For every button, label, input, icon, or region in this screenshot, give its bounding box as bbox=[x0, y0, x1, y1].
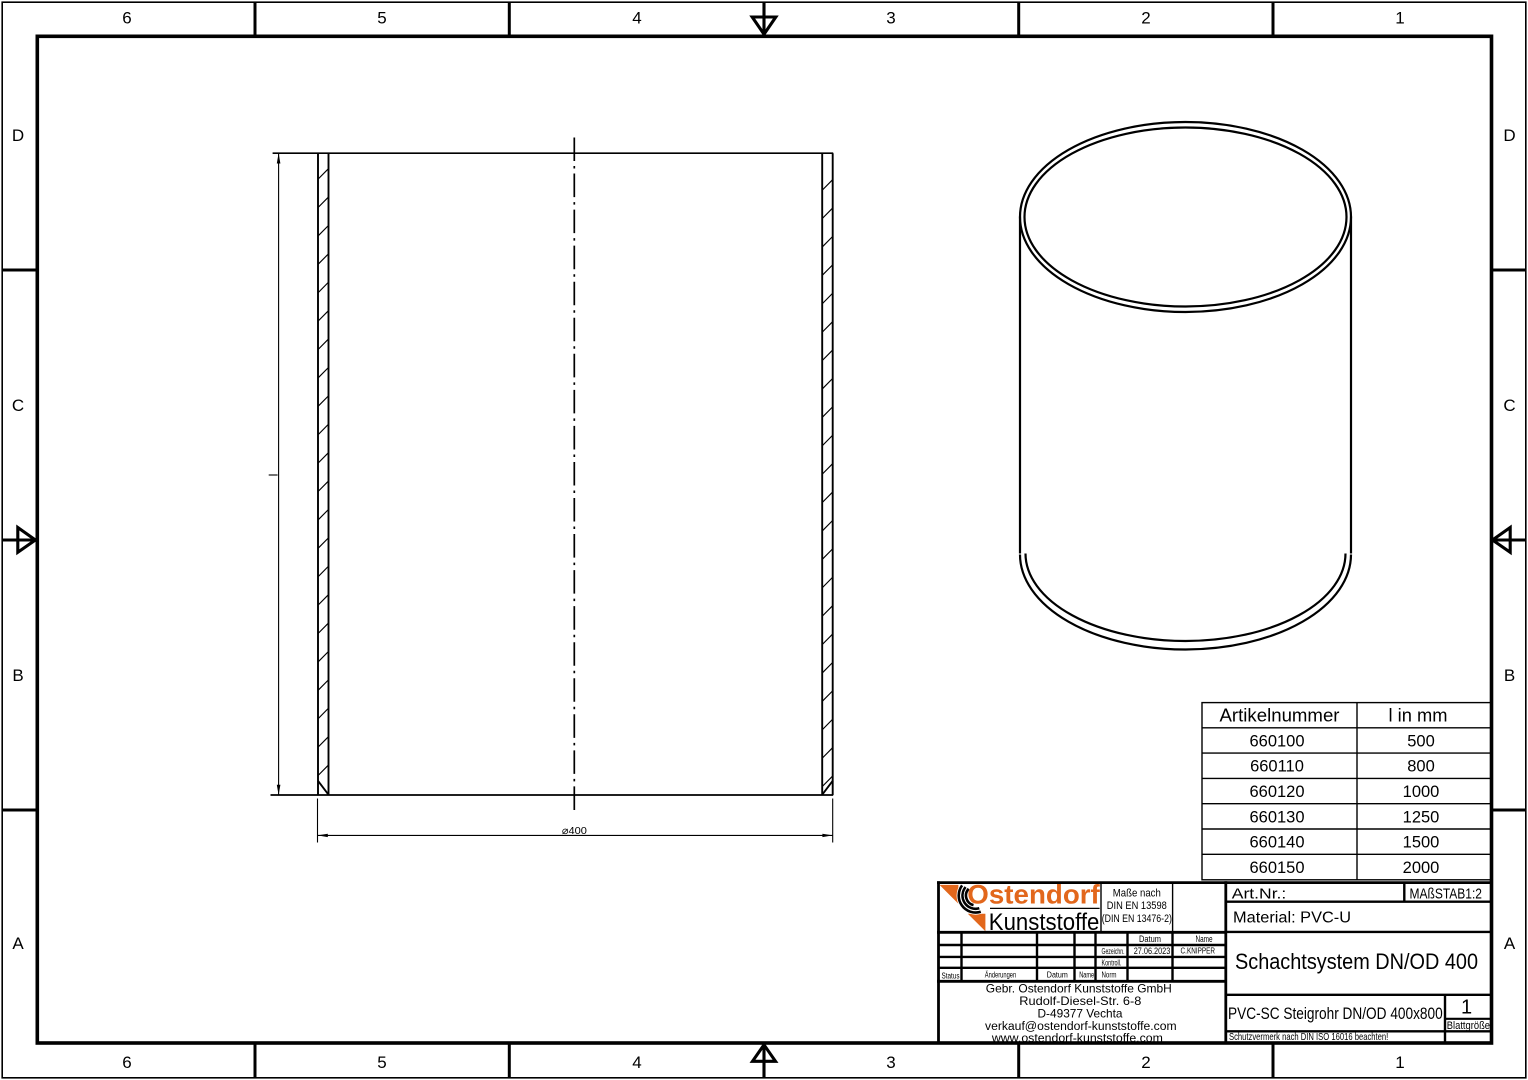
svg-text:Name: Name bbox=[1196, 934, 1213, 944]
svg-text:5: 5 bbox=[377, 9, 386, 28]
svg-text:D: D bbox=[1503, 126, 1515, 145]
svg-text:Norm: Norm bbox=[1102, 971, 1117, 980]
svg-text:D: D bbox=[12, 126, 24, 145]
svg-text:6: 6 bbox=[122, 1053, 131, 1072]
svg-text:Schutzvermerk nach DIN ISO 160: Schutzvermerk nach DIN ISO 16016 beachte… bbox=[1229, 1031, 1388, 1043]
svg-text:B: B bbox=[12, 666, 23, 685]
svg-text:800: 800 bbox=[1407, 758, 1435, 776]
svg-text:DIN EN 13598: DIN EN 13598 bbox=[1107, 900, 1167, 912]
svg-text:6: 6 bbox=[122, 9, 131, 28]
svg-text:1500: 1500 bbox=[1403, 834, 1440, 852]
svg-text:C: C bbox=[1503, 396, 1515, 415]
svg-text:3: 3 bbox=[886, 9, 895, 28]
svg-text:l in mm: l in mm bbox=[1389, 706, 1448, 726]
svg-text:27.06.2023: 27.06.2023 bbox=[1134, 946, 1171, 956]
svg-text:Gezeichn.: Gezeichn. bbox=[1102, 947, 1125, 956]
svg-text:660140: 660140 bbox=[1249, 834, 1304, 852]
svg-text:Datum: Datum bbox=[1047, 971, 1068, 980]
svg-text:500: 500 bbox=[1407, 732, 1435, 750]
svg-text:(DIN EN 13476-2): (DIN EN 13476-2) bbox=[1102, 913, 1172, 925]
svg-text:MAßSTAB1:2: MAßSTAB1:2 bbox=[1410, 886, 1483, 903]
svg-text:2000: 2000 bbox=[1403, 859, 1440, 877]
svg-text:www.ostendorf-kunststoffe.com: www.ostendorf-kunststoffe.com bbox=[991, 1033, 1163, 1045]
svg-text:2: 2 bbox=[1141, 1053, 1150, 1072]
svg-text:Kontroll.: Kontroll. bbox=[1102, 958, 1122, 967]
svg-text:1: 1 bbox=[1395, 1053, 1404, 1072]
svg-text:B: B bbox=[1504, 666, 1515, 685]
svg-text:PVC-SC Steigrohr DN/OD 400x800: PVC-SC Steigrohr DN/OD 400x800 bbox=[1228, 1005, 1443, 1023]
svg-text:C: C bbox=[12, 396, 24, 415]
svg-text:660120: 660120 bbox=[1249, 783, 1304, 801]
svg-text:Maße nach: Maße nach bbox=[1113, 888, 1161, 900]
svg-text:Material: PVC-U: Material: PVC-U bbox=[1233, 910, 1351, 927]
svg-text:Name: Name bbox=[1079, 971, 1094, 980]
svg-text:Art.Nr.:: Art.Nr.: bbox=[1232, 886, 1287, 903]
svg-text:⌀400: ⌀400 bbox=[562, 825, 587, 837]
svg-text:660130: 660130 bbox=[1249, 808, 1304, 826]
svg-text:Artikelnummer: Artikelnummer bbox=[1220, 706, 1340, 726]
svg-text:Blattgröße: Blattgröße bbox=[1447, 1020, 1490, 1032]
svg-text:Status: Status bbox=[942, 971, 960, 980]
svg-text:1: 1 bbox=[1395, 9, 1404, 28]
svg-text:3: 3 bbox=[886, 1053, 895, 1072]
svg-text:Schachtsystem DN/OD 400: Schachtsystem DN/OD 400 bbox=[1235, 949, 1478, 974]
svg-text:4: 4 bbox=[632, 1053, 641, 1072]
svg-text:660150: 660150 bbox=[1249, 859, 1304, 877]
svg-text:Änderungen: Änderungen bbox=[985, 971, 1016, 980]
svg-text:Ostendorf: Ostendorf bbox=[967, 880, 1101, 910]
svg-text:A: A bbox=[12, 934, 24, 953]
svg-text:1250: 1250 bbox=[1403, 808, 1440, 826]
svg-text:4: 4 bbox=[632, 9, 641, 28]
svg-text:1000: 1000 bbox=[1403, 783, 1440, 801]
svg-text:1: 1 bbox=[1461, 997, 1472, 1019]
svg-text:Datum: Datum bbox=[1139, 934, 1161, 944]
svg-text:660110: 660110 bbox=[1250, 758, 1304, 776]
svg-text:D-49377 Vechta: D-49377 Vechta bbox=[1038, 1006, 1123, 1020]
svg-text:verkauf@ostendorf-kunststoffe.: verkauf@ostendorf-kunststoffe.com bbox=[985, 1021, 1177, 1033]
svg-text:A: A bbox=[1504, 934, 1516, 953]
svg-text:660100: 660100 bbox=[1249, 732, 1304, 750]
svg-text:2: 2 bbox=[1141, 9, 1150, 28]
svg-text:C.KNIPPER: C.KNIPPER bbox=[1181, 946, 1216, 956]
svg-text:5: 5 bbox=[377, 1053, 386, 1072]
